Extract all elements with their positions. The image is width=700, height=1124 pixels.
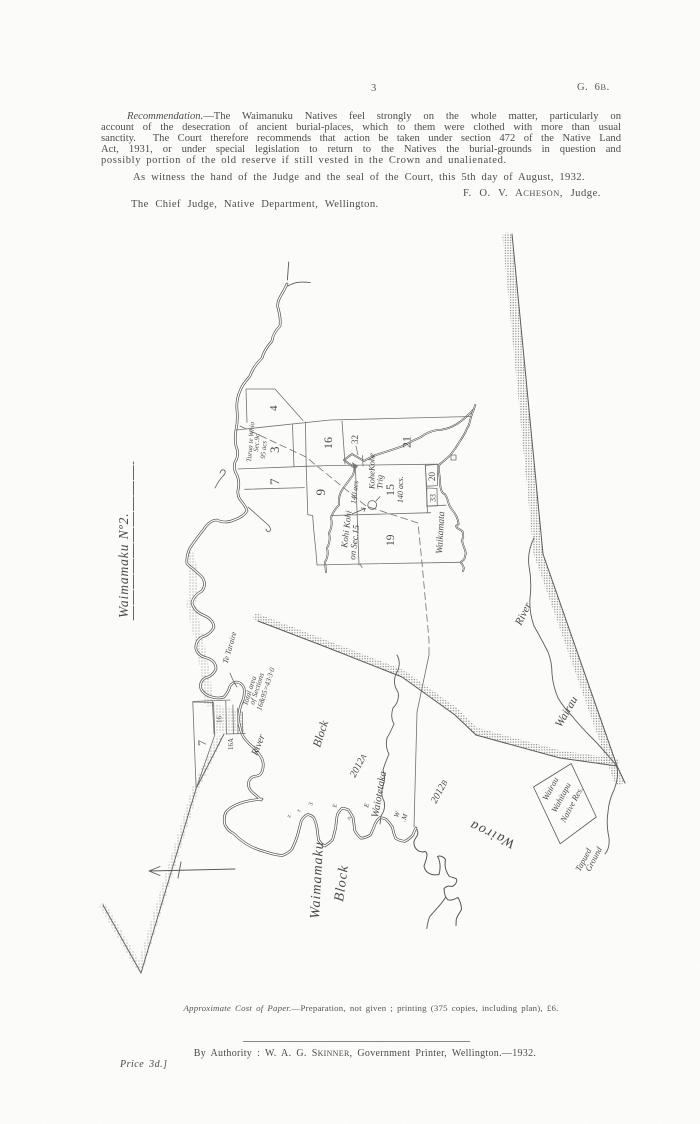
svg-text:3: 3	[267, 447, 282, 454]
svg-text:21: 21	[400, 436, 414, 448]
svg-text:9: 9	[313, 489, 328, 496]
svg-text:19: 19	[385, 534, 397, 546]
svg-text:7: 7	[195, 740, 209, 746]
svg-text:Trig: Trig	[375, 475, 385, 489]
svg-text:33: 33	[429, 494, 438, 502]
svg-text:140 acs.: 140 acs.	[396, 476, 405, 503]
svg-text:20: 20	[427, 472, 437, 482]
svg-text:16A: 16A	[227, 738, 235, 750]
svg-text:15: 15	[383, 484, 397, 496]
svg-text:95 acs: 95 acs	[259, 440, 269, 459]
svg-text:Waimamaku Nº2.: Waimamaku Nº2.	[116, 512, 131, 618]
svg-text:7: 7	[267, 478, 282, 485]
svg-text:32: 32	[350, 435, 360, 444]
svg-text:4: 4	[268, 405, 280, 411]
svg-text:16: 16	[321, 437, 335, 449]
svg-text:16: 16	[216, 716, 224, 724]
